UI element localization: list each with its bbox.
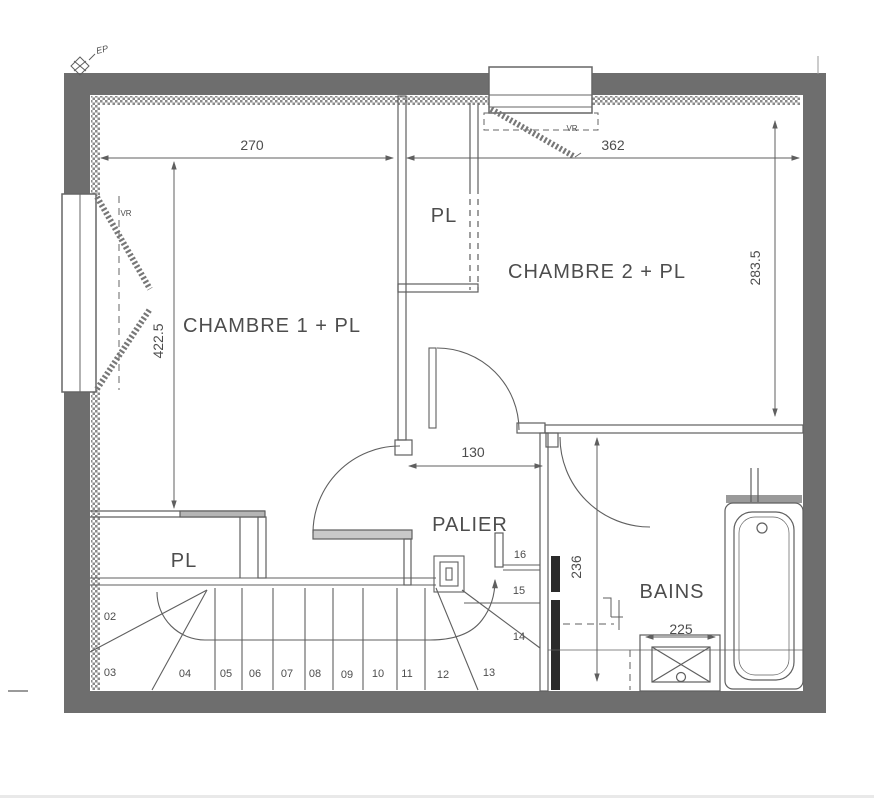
ep-label: EP bbox=[95, 43, 109, 56]
height-mark bbox=[603, 598, 623, 630]
scan-edge bbox=[0, 795, 874, 798]
ep-symbol bbox=[71, 54, 95, 75]
room-label-palier: PALIER bbox=[432, 514, 508, 536]
floor-plan-drawing: VR VR EP bbox=[0, 0, 874, 800]
dim-130: 130 bbox=[461, 444, 485, 460]
sink bbox=[548, 635, 803, 691]
exterior-wall bbox=[64, 73, 826, 713]
step-13: 13 bbox=[483, 667, 495, 679]
step-10: 10 bbox=[372, 668, 384, 680]
room-label-bains: BAINS bbox=[639, 581, 704, 603]
step-14: 14 bbox=[513, 631, 525, 643]
room-label-chambre1: CHAMBRE 1 + PL bbox=[183, 315, 361, 337]
door-bains bbox=[560, 437, 650, 527]
duct-bars bbox=[551, 556, 560, 690]
step-03: 03 bbox=[104, 667, 116, 679]
vr-top-label: VR bbox=[566, 124, 577, 133]
dim-225: 225 bbox=[669, 621, 693, 637]
dim-236: 236 bbox=[568, 555, 584, 579]
dim-270: 270 bbox=[240, 137, 264, 153]
step-15: 15 bbox=[513, 585, 525, 597]
step-16: 16 bbox=[514, 549, 526, 561]
step-12: 12 bbox=[437, 669, 449, 681]
door-chambre1 bbox=[313, 446, 400, 533]
door-chambre2 bbox=[429, 348, 519, 430]
bathtub bbox=[725, 468, 803, 689]
step-02: 02 bbox=[104, 611, 116, 623]
step-05: 05 bbox=[220, 668, 232, 680]
left-window bbox=[62, 194, 150, 392]
dim-283-5: 283.5 bbox=[747, 250, 763, 285]
step-06: 06 bbox=[249, 668, 261, 680]
dim-362: 362 bbox=[601, 137, 625, 153]
step-08: 08 bbox=[309, 668, 321, 680]
top-window bbox=[484, 67, 598, 157]
room-label-chambre2: CHAMBRE 2 + PL bbox=[508, 261, 686, 283]
vr-left-label: VR bbox=[120, 209, 131, 218]
closet-label-top: PL bbox=[431, 205, 457, 227]
closet-label-bottom: PL bbox=[171, 550, 197, 572]
dim-422-5: 422.5 bbox=[150, 323, 166, 358]
step-11: 11 bbox=[401, 668, 412, 680]
step-04: 04 bbox=[179, 668, 191, 680]
step-07: 07 bbox=[281, 668, 293, 680]
floor-plan-page: VR VR EP bbox=[0, 0, 874, 800]
step-09: 09 bbox=[341, 669, 353, 681]
